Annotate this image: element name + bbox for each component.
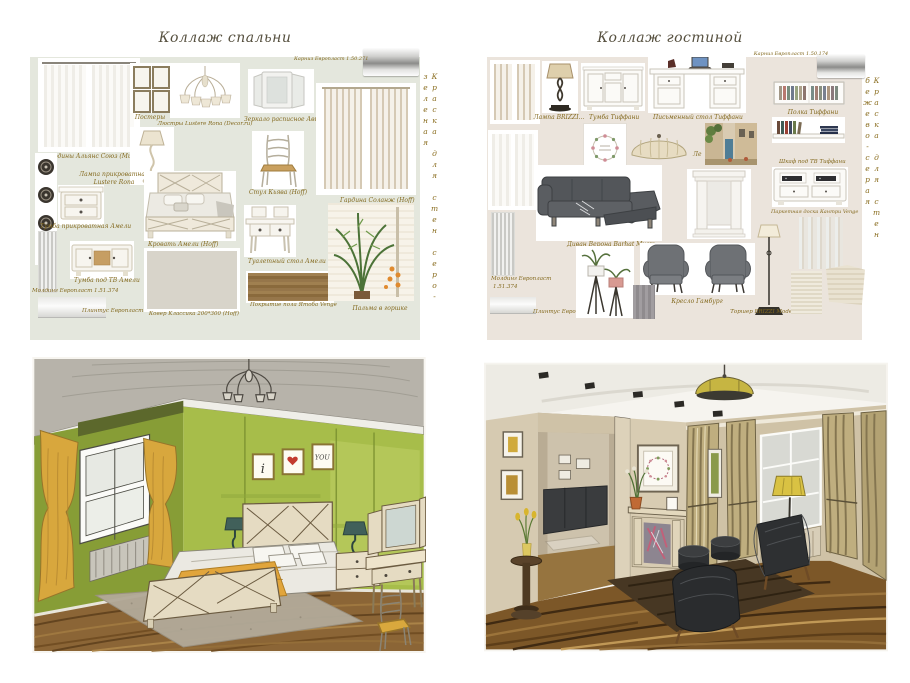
note-label: Ле	[693, 151, 709, 158]
floor-lamp-sample	[753, 223, 785, 319]
plant-stand-icon	[576, 246, 634, 318]
ceiling-light-icon	[628, 131, 690, 161]
cabinet-icon	[581, 63, 645, 111]
chair-sample	[252, 131, 304, 189]
posters-label: Постеры	[128, 114, 172, 121]
tv-stand-icon	[70, 241, 134, 279]
bookshelf-sample	[773, 81, 845, 105]
bed-sample	[144, 171, 236, 241]
open-shelf-icon	[772, 117, 845, 143]
chandelier-sample	[170, 63, 240, 118]
dressing-table-icon	[244, 205, 296, 257]
curtain2-sample	[316, 83, 416, 195]
plant-stand-sample	[576, 246, 634, 318]
bed-icon	[144, 171, 236, 241]
floor-label: Покрытие пола Ятоба Venge	[250, 302, 332, 309]
nightstand-label: Тумба прикроватная Амели	[40, 223, 116, 230]
chair-label: Стул Кьява (Hoff)	[246, 189, 310, 196]
ceiling-light-sample	[628, 131, 690, 161]
mirror-sample	[248, 69, 314, 113]
bedroom-paint-label: Краска для стен серо-зеленая	[421, 72, 439, 304]
living-collage-title: Коллаж гостиной	[560, 30, 780, 46]
molding-sample	[38, 231, 57, 293]
cabinet-sample	[581, 63, 645, 111]
cornice-label: Карниз Европласт 1.50.271	[294, 56, 366, 63]
cabinet-label: Тумба Тиффани	[589, 114, 639, 121]
molding-label-1: Молдинг Европласт	[491, 276, 551, 283]
tv-stand-sample	[70, 241, 134, 279]
desk-label: Письменный стол Тиффани	[653, 114, 733, 121]
curtain-rod	[42, 62, 136, 64]
bedroom-collage-title: Коллаж спальни	[115, 30, 335, 46]
posters-sample	[130, 63, 170, 113]
mirror-icon	[248, 69, 314, 113]
nightstand-sample	[58, 185, 104, 225]
art-text-i: i	[261, 462, 265, 477]
mantel-photo	[667, 497, 678, 510]
bedroom-sketch: i YOU	[32, 357, 426, 653]
tv-cabinet-sample	[772, 167, 848, 207]
chandelier-icon	[170, 63, 240, 118]
cornice-label: Карниз Европласт 1.50.174	[753, 51, 829, 58]
street-picture	[705, 123, 757, 165]
brizzi-lamp-sample	[542, 61, 578, 113]
open-shelf-sample	[772, 117, 845, 143]
floor-lamp-icon	[753, 223, 785, 319]
fabric-swatch-1	[791, 271, 822, 314]
tv-stand-label: Тумба под ТВ Амели	[74, 277, 134, 284]
armchair-label: Кресло Гамбург	[669, 298, 725, 305]
molding-sample	[491, 212, 515, 276]
pilaster	[615, 417, 630, 584]
armchairs-icon	[640, 243, 755, 295]
fireplace-sample	[687, 169, 751, 239]
molding-label: Молдинг Европласт 1.51.374	[32, 288, 106, 295]
curtains-sheer-sample	[488, 130, 538, 210]
sofa-icon	[536, 165, 662, 241]
moodboard-page: Коллаж спальни Коллаж гостиной Гардины А…	[0, 0, 910, 683]
tv-cabinet-icon	[772, 167, 848, 207]
cornice-sample	[363, 48, 419, 76]
shelf-label: Полка Тиффани	[787, 109, 839, 116]
dressing-table-sample	[244, 205, 296, 257]
fireplace-picture	[638, 445, 678, 491]
fireplace-icon	[687, 169, 751, 239]
palm-label: Пальма в горшке	[350, 305, 410, 312]
palm-icon	[328, 203, 414, 301]
living-paint-label: Краска для стен бежево-серая	[863, 76, 881, 308]
carpet-label: Ковер Классика 200*300 (Hoff)	[148, 311, 240, 318]
chair-icon	[252, 131, 304, 189]
nightstand-icon	[58, 185, 104, 225]
pouf-2	[711, 536, 740, 560]
floor-sample	[246, 271, 334, 303]
molding-label-2: 1.51.374	[493, 284, 518, 291]
sheer-curtains-sample	[38, 58, 140, 152]
curtains-label: Гардины Альянс Союз (Мир)	[42, 153, 142, 160]
bedroom-collage-panel: Гардины Альянс Союз (Мир) Постеры Люстры…	[30, 57, 420, 340]
mirror-label: Зеркало расписное Авила	[244, 116, 320, 123]
dressing-table-label: Туалетный стол Амели	[248, 258, 308, 265]
bookshelf-icon	[773, 81, 845, 105]
sofa-sample	[536, 165, 662, 241]
living-collage-panel: Молдинг Европласт 1.51.374 Плинтус Европ…	[487, 57, 862, 340]
whitewood-sample	[799, 217, 843, 269]
plinth-sample	[490, 297, 536, 314]
adjacent-room	[538, 413, 615, 602]
carpet-sample	[144, 248, 240, 312]
brizzi-lamp-label: Лампа BRIZZI...	[533, 114, 585, 121]
bed-label: Кровать Амели (Hoff)	[148, 241, 212, 248]
tv-cabinet-label: Шкаф под ТВ Тиффани	[779, 159, 843, 166]
throw-sample	[633, 285, 655, 319]
desk-icon	[648, 57, 746, 113]
fabric-swatch-2	[826, 265, 865, 305]
living-sketch	[484, 357, 888, 657]
parquet-label: Паркетная доска Кантри Venge	[771, 209, 855, 216]
armchairs-sample	[640, 243, 755, 295]
brizzi-lamp-icon	[542, 61, 578, 113]
art-text-you: YOU	[315, 453, 331, 461]
palm-sample	[328, 203, 414, 301]
street-picture-sample	[705, 123, 757, 165]
desk-sample	[648, 57, 746, 113]
